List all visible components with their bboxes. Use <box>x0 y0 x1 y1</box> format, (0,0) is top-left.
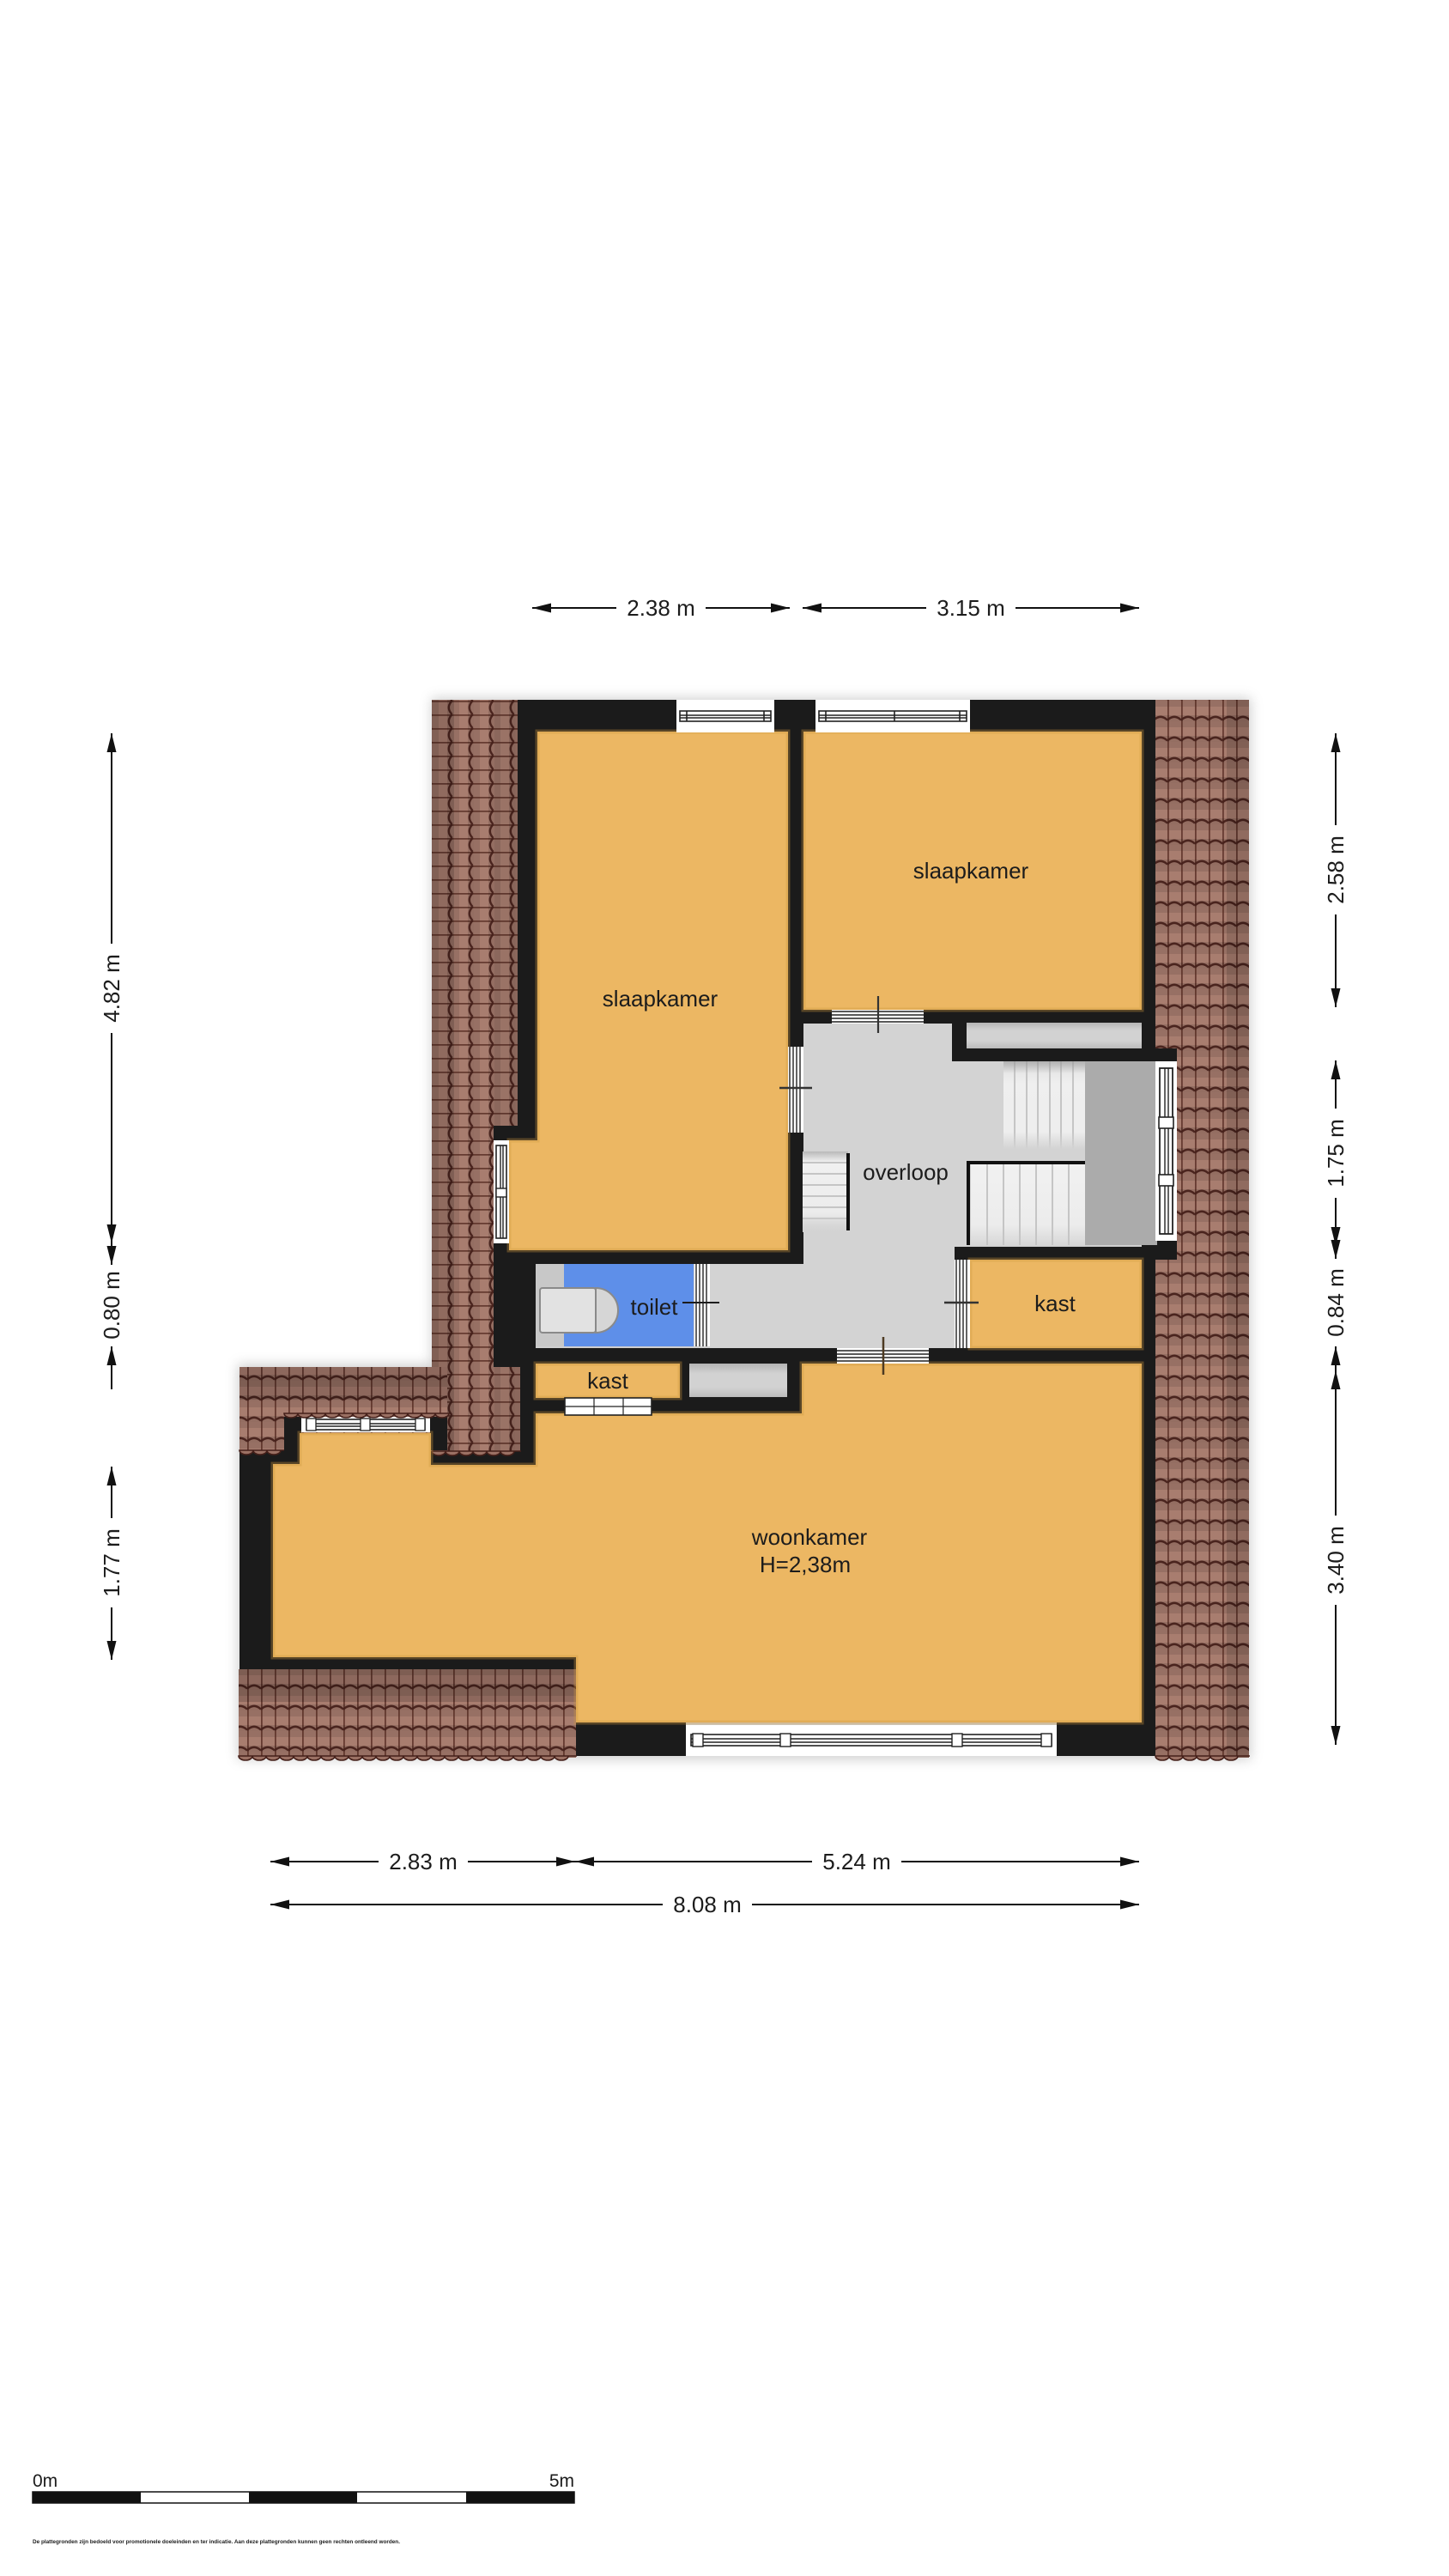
svg-text:kast: kast <box>1034 1291 1076 1316</box>
svg-text:0.84 m: 0.84 m <box>1323 1268 1349 1337</box>
svg-text:2.83 m: 2.83 m <box>389 1849 458 1874</box>
svg-text:H=2,38m: H=2,38m <box>760 1552 851 1577</box>
svg-text:8.08 m: 8.08 m <box>673 1892 742 1917</box>
svg-text:3.15 m: 3.15 m <box>937 595 1005 621</box>
svg-text:2.58 m: 2.58 m <box>1323 835 1349 904</box>
svg-text:toilet: toilet <box>631 1294 679 1320</box>
svg-text:0.80 m: 0.80 m <box>99 1271 124 1340</box>
svg-text:slaapkamer: slaapkamer <box>913 858 1029 884</box>
svg-text:0m: 0m <box>33 2471 58 2491</box>
svg-text:3.40 m: 3.40 m <box>1323 1526 1349 1595</box>
svg-text:woonkamer: woonkamer <box>751 1524 868 1550</box>
svg-text:1.75 m: 1.75 m <box>1323 1119 1349 1188</box>
svg-text:5m: 5m <box>549 2471 574 2491</box>
svg-text:kast: kast <box>587 1368 628 1394</box>
svg-text:2.38 m: 2.38 m <box>627 595 695 621</box>
svg-text:De plattegronden zijn bedoeld: De plattegronden zijn bedoeld voor promo… <box>33 2539 400 2545</box>
svg-text:5.24 m: 5.24 m <box>822 1849 891 1874</box>
svg-text:slaapkamer: slaapkamer <box>603 986 718 1012</box>
svg-text:1.77 m: 1.77 m <box>99 1528 124 1597</box>
svg-text:overloop: overloop <box>863 1159 949 1185</box>
svg-text:4.82 m: 4.82 m <box>99 954 124 1023</box>
